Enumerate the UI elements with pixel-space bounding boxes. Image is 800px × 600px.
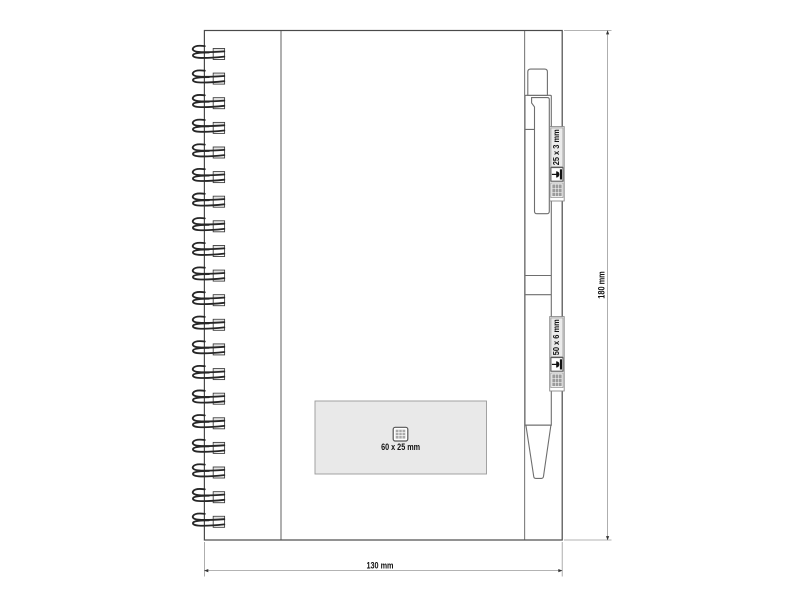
svg-text:60 x 25 mm: 60 x 25 mm (381, 442, 420, 452)
svg-text:25 x 3 mm: 25 x 3 mm (552, 129, 561, 165)
svg-text:130 mm: 130 mm (367, 561, 394, 571)
svg-text:180 mm: 180 mm (596, 271, 606, 299)
svg-text:50 x 6 mm: 50 x 6 mm (552, 319, 561, 355)
